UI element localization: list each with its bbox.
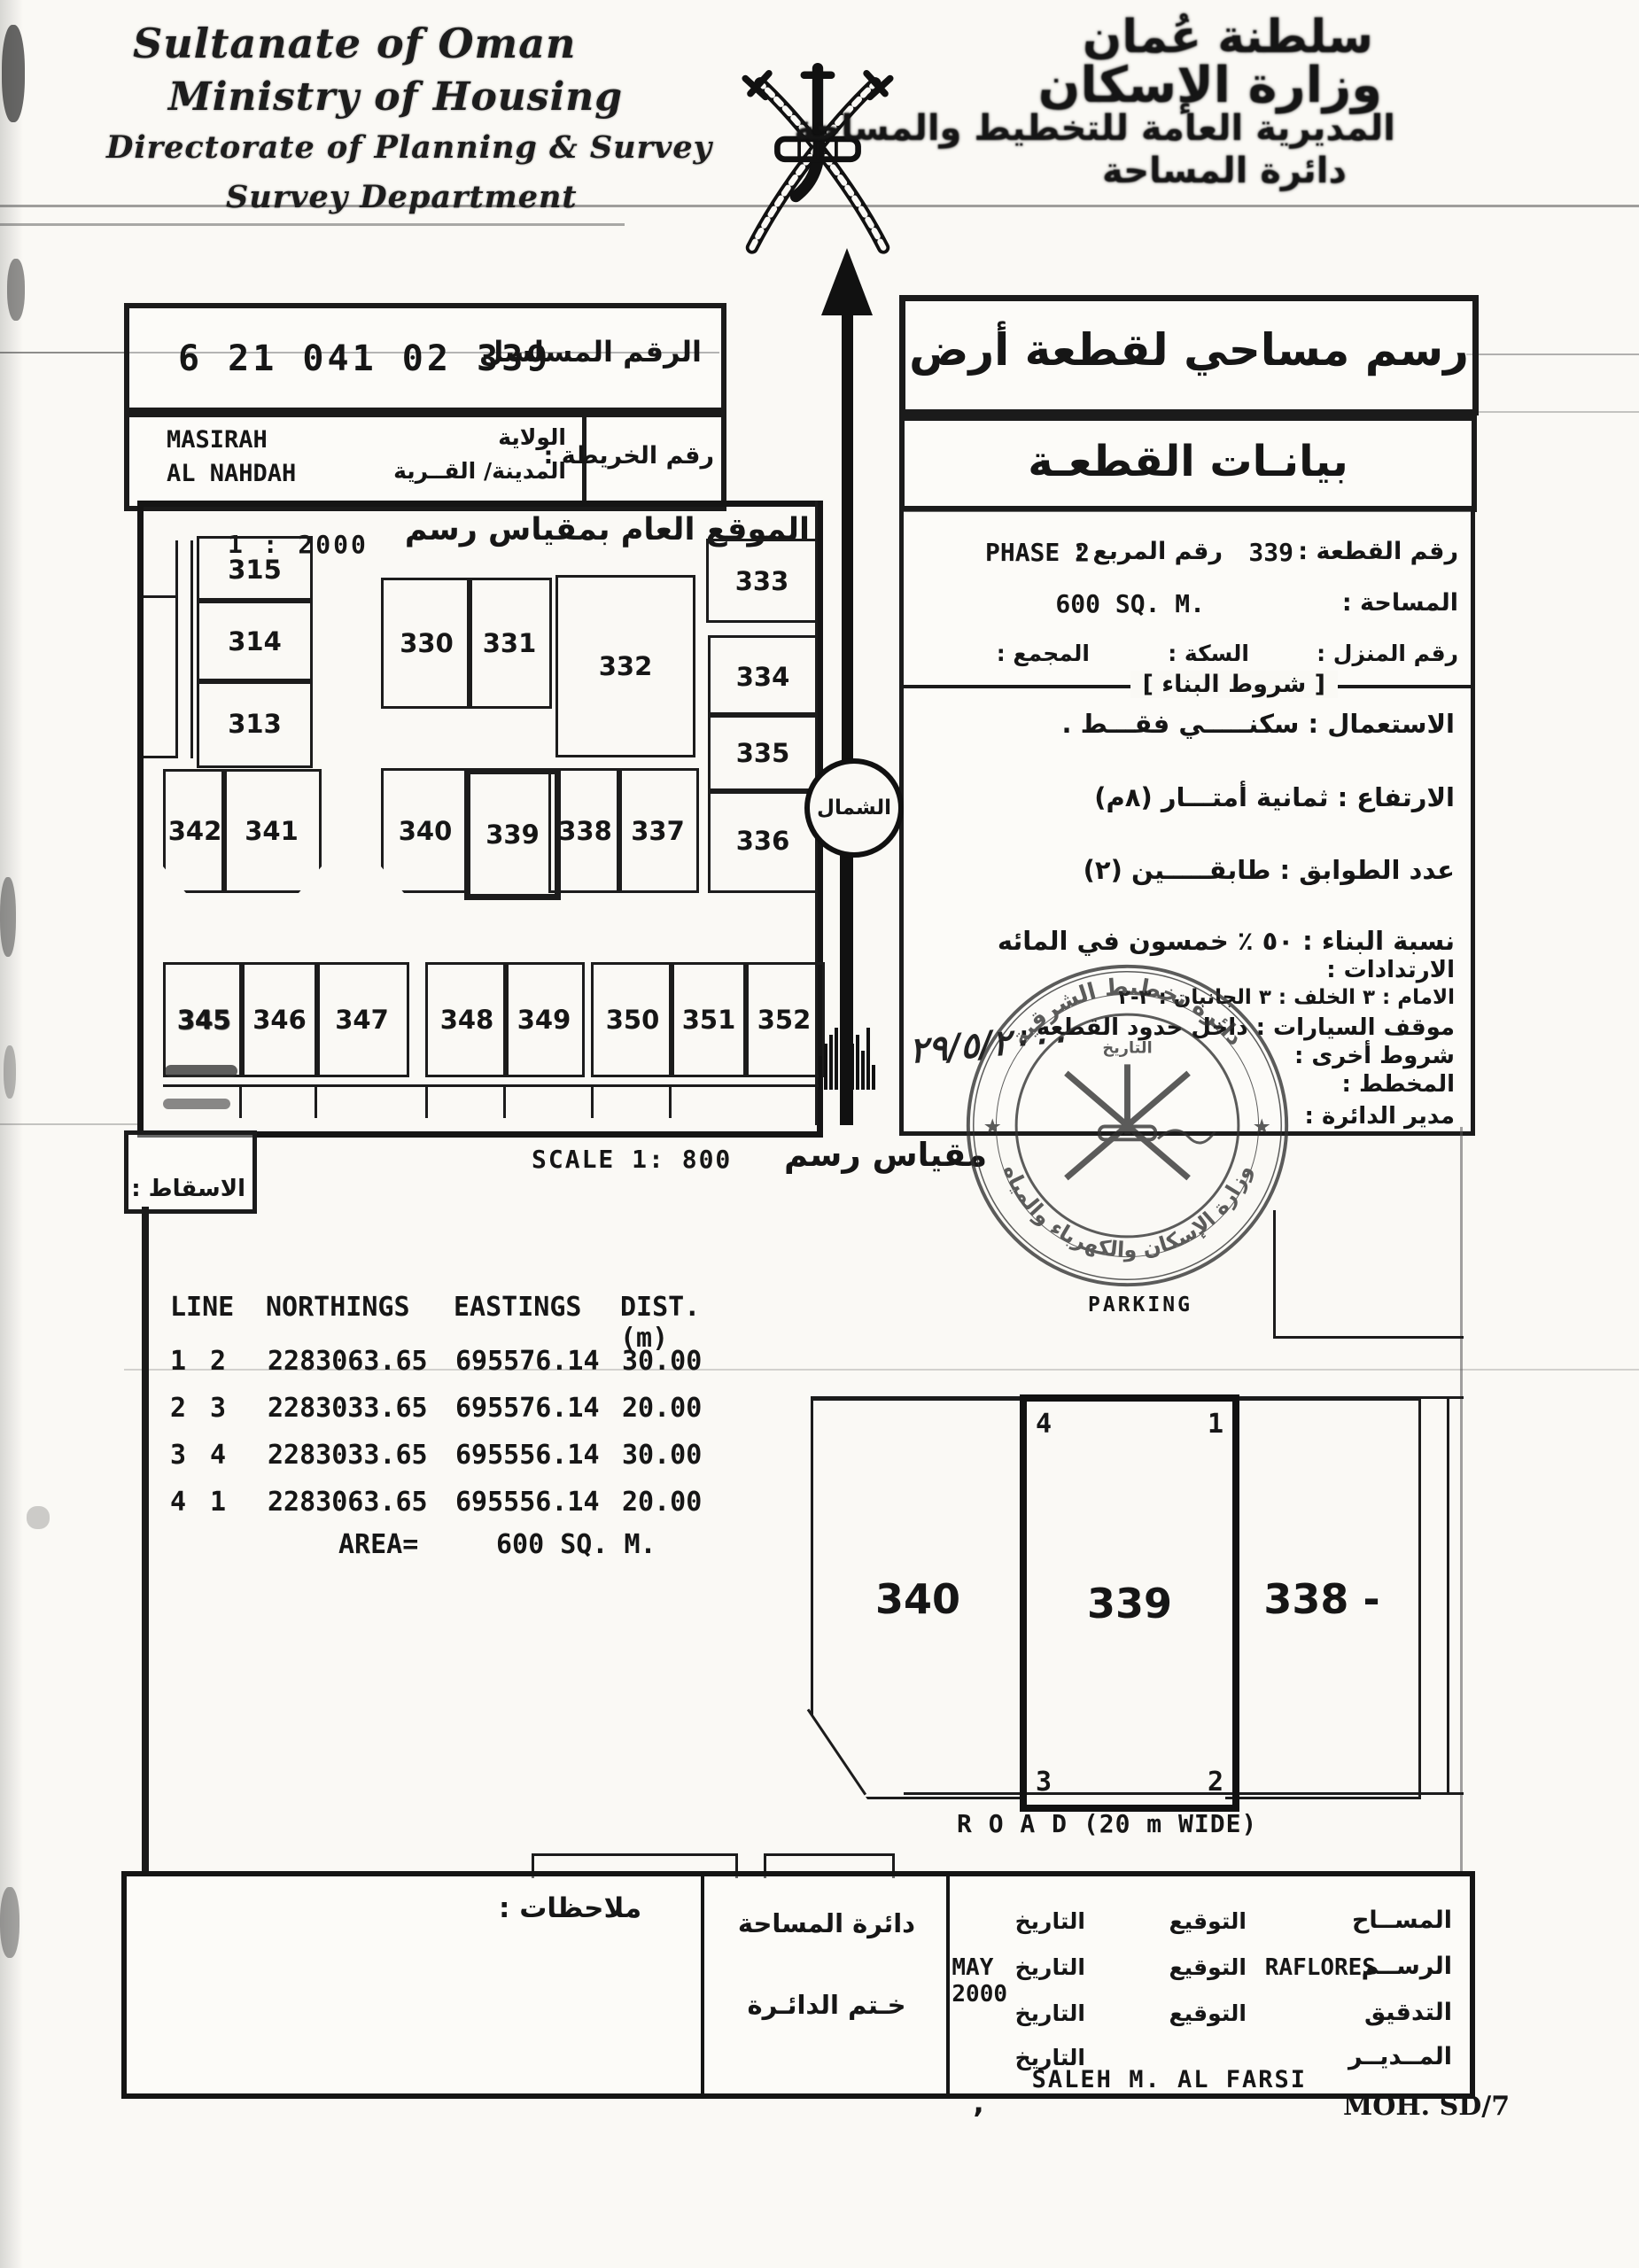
map-plot-347: 347 — [315, 962, 409, 1077]
header-line-survey-dept: Survey Department — [226, 179, 578, 215]
building-condition-line: الارتدادات : — [1326, 957, 1455, 983]
date-label: التاريخ — [1015, 1908, 1085, 1934]
coords-cell: 20.00 — [622, 1487, 746, 1518]
stamp-outer-text: وزارة الإسكان والكهرباء والمياه — [998, 1161, 1257, 1262]
scan-smudge — [27, 1506, 50, 1529]
map-plot-label: 331 — [483, 628, 537, 658]
building-condition-line: المخطط : — [1342, 1071, 1455, 1098]
map-road-tick — [144, 595, 175, 598]
wilayat-value: MASIRAH — [167, 426, 268, 454]
coords-cell: 3 — [170, 1440, 210, 1471]
road-far-edge — [764, 1853, 895, 1856]
date-label: التاريخ — [1015, 1954, 1085, 1980]
header-line-ministry: Ministry of Housing — [168, 74, 623, 120]
map-plot-346: 346 — [239, 962, 320, 1077]
complex-label: المجمع : — [997, 641, 1090, 666]
corner-point-1: 1 — [1208, 1409, 1223, 1440]
coords-cell: 1 — [170, 1346, 210, 1377]
scan-edge-shadow — [0, 0, 23, 2268]
coords-cell: 2 — [210, 1346, 268, 1377]
plot-no-label: رقم القطعة : — [1298, 538, 1458, 565]
map-plot-label: 342 — [168, 816, 222, 846]
area-value: 600 SQ. M. — [1055, 589, 1205, 618]
scan-smudge — [0, 1887, 19, 1958]
road-label: R O A D (20 m WIDE) — [957, 1809, 1257, 1838]
scan-smudge — [7, 259, 25, 321]
square-value: PHASE 2 — [985, 538, 1090, 567]
signature-value: RAFLORES — [1265, 1954, 1376, 1981]
map-plot-label: 350 — [606, 1005, 660, 1035]
stamp-star-icon: ★ — [1253, 1114, 1271, 1138]
coords-cell: 2283033.65 — [268, 1440, 455, 1471]
hatch-bar — [861, 1051, 865, 1090]
map-plot-label: 335 — [736, 738, 790, 768]
scale-text-en: SCALE 1: 800 — [532, 1145, 732, 1174]
area-label: المساحة : — [1342, 589, 1458, 617]
map-plot-label: 314 — [228, 626, 282, 656]
area-total-label: AREA= — [338, 1529, 418, 1560]
coords-cell: 2283033.65 — [268, 1393, 455, 1424]
corner-point-3: 3 — [1036, 1767, 1052, 1798]
coords-cell: 695576.14 — [455, 1393, 622, 1424]
map-plot-330: 330 — [381, 578, 472, 709]
map-plot-341: 341 — [221, 769, 322, 893]
map-plot-label: 315 — [228, 555, 282, 585]
terrain-hatch-icon — [819, 1026, 881, 1090]
map-road-tick — [144, 756, 175, 758]
signature-row: التدقيقالتوقيعالتاريخ — [959, 1999, 1457, 2043]
site-plot-340: 340 — [811, 1398, 1022, 1799]
map-plot-349: 349 — [503, 962, 585, 1077]
plot-no-value: 339 — [1248, 538, 1293, 567]
document-title: رسم مساحي لقطعة أرض — [905, 324, 1472, 376]
coords-cell: 4 — [170, 1487, 210, 1518]
scan-smudge — [2, 25, 25, 122]
location-box: MASIRAH AL NAHDAH الولاية المدينة/ القــ… — [124, 412, 726, 511]
site-plan-line — [1447, 1398, 1449, 1794]
hatch-bar — [819, 1056, 822, 1090]
date-label: التاريخ — [1015, 2000, 1085, 2026]
header-line-sultanate-ar: سلطنة عُمان — [1083, 11, 1373, 64]
projection-box: الاسقاط : — [124, 1130, 257, 1214]
map-plot-332: 332 — [555, 575, 695, 757]
scan-streak — [0, 223, 625, 226]
coords-cell: 695556.14 — [455, 1487, 622, 1518]
area-total-value: 600 SQ. M. — [496, 1529, 656, 1560]
form-code: MOH. SD/7 — [1343, 2091, 1510, 2122]
signature-label: التوقيع — [1169, 1954, 1247, 1980]
footer-signature-table: ملاحظات : دائرة المساحة خـتم الدائـرة ال… — [121, 1871, 1475, 2099]
map-plot-335: 335 — [708, 712, 818, 794]
hatch-bar — [845, 1028, 849, 1090]
serial-number-label: الرقم المسلسل — [479, 335, 702, 369]
coords-table-rows: 122283063.65695576.1430.00232283033.6569… — [170, 1338, 746, 1526]
plot-data-header-box: بيانـات القطعـة — [899, 415, 1477, 512]
signature-role-label: المســاح — [1352, 1907, 1452, 1934]
oman-emblem-icon — [734, 55, 902, 272]
coords-cell: 30.00 — [622, 1440, 746, 1471]
map-plot-label: 340 — [399, 816, 453, 846]
coords-table-row: 122283063.65695576.1430.00 — [170, 1338, 746, 1385]
street-label: السكة : — [1168, 641, 1249, 666]
map-plot-315: 315 — [197, 536, 313, 603]
house-no-label: رقم المنزل : — [1317, 641, 1458, 666]
north-label: الشمال — [817, 796, 891, 819]
coords-cell: 20.00 — [622, 1393, 746, 1424]
map-road-line — [175, 540, 178, 758]
scan-streak — [0, 1123, 140, 1125]
building-condition-line: نسبة البناء : ٥٠ ٪ خمسون في المائه — [998, 926, 1455, 956]
map-plot-331: 331 — [467, 578, 552, 709]
official-stamp: دائرة تخطيط الشرقية وزارة الإسكان والكهر… — [957, 955, 1298, 1296]
director-name: SALEH M. AL FARSI — [1032, 2066, 1307, 2093]
document-title-box: رسم مساحي لقطعة أرض — [899, 295, 1479, 416]
building-conditions-header: [ شروط البناء ] — [1130, 671, 1338, 698]
map-plot-label: 347 — [335, 1005, 389, 1035]
map-plot-334: 334 — [708, 635, 818, 718]
hatch-bar — [872, 1065, 875, 1090]
dept-stamp-label: خـتم الدائـرة — [711, 1990, 942, 2020]
parking-block-outline — [1273, 1210, 1464, 1339]
hatch-bar — [866, 1028, 870, 1090]
map-plot-342: 342 — [163, 769, 227, 893]
plot-data-header: بيانـات القطعـة — [905, 437, 1472, 486]
plot-data-fields: رقم القطعة : 339 رقم المربع : PHASE 2 ال… — [904, 511, 1471, 688]
header-line-directorate: Directorate of Planning & Survey — [106, 129, 712, 166]
map-plot-352: 352 — [743, 962, 825, 1077]
signature-row: الرســمالتوقيعRAFLORESالتاريخMAY 2000 — [959, 1953, 1457, 1997]
divider — [946, 1876, 950, 2093]
site-plot-339-highlighted: 339 4 1 3 2 — [1020, 1394, 1239, 1812]
map-plot-label: 337 — [631, 816, 685, 846]
header-line-ministry-ar: وزارة الإسكان — [1038, 57, 1382, 114]
building-condition-line: الارتفاع : ثمانية أمتـــار (٨م) — [1094, 782, 1455, 812]
header-line-directorate-ar: المديرية العامة للتخطيط والمساحة — [794, 108, 1395, 149]
map-plot-337: 337 — [617, 768, 699, 893]
scan-smudge — [163, 1099, 230, 1109]
coords-cell: 3 — [210, 1393, 268, 1424]
north-label-circle: الشمال — [804, 758, 904, 858]
map-plot-314: 314 — [197, 598, 313, 684]
signature-label: التوقيع — [1169, 1908, 1247, 1934]
site-plot-340-label: 340 — [875, 1575, 960, 1623]
scan-mark: ’ — [973, 2101, 984, 2137]
building-condition-line: مدير الدائرة : — [1305, 1103, 1455, 1130]
hatch-bar — [835, 1028, 838, 1090]
signature-label: التوقيع — [1169, 2000, 1247, 2026]
hatch-bar — [824, 1044, 827, 1090]
site-plot-338: 338 - — [1225, 1398, 1421, 1799]
map-block-tick — [503, 1084, 506, 1118]
map-plot-348: 348 — [425, 962, 509, 1077]
map-plot-label: 351 — [682, 1005, 736, 1035]
map-number-label: رقم الخريطة : — [544, 442, 714, 470]
header-line-sultanate: Sultanate of Oman — [133, 19, 576, 67]
map-plot-label: 333 — [735, 566, 789, 596]
map-plot-label: 336 — [736, 826, 790, 856]
map-plot-label: 338 — [558, 816, 612, 846]
building-condition-line: شروط أخرى : — [1294, 1043, 1455, 1069]
scan-smudge — [4, 1045, 16, 1099]
map-plot-333: 333 — [706, 539, 818, 623]
serial-number-box: 6 21 041 02 339 الرقم المسلسل — [124, 303, 726, 413]
coords-cell: 695576.14 — [455, 1346, 622, 1377]
map-plot-350: 350 — [591, 962, 674, 1077]
coords-cell: 4 — [210, 1440, 268, 1471]
signature-role-label: المــديــر — [1348, 2043, 1452, 2070]
map-block-tick — [669, 1084, 672, 1118]
coords-table-row: 232283033.65695576.1420.00 — [170, 1385, 746, 1432]
parking-label: PARKING — [1088, 1293, 1192, 1317]
map-plot-label: 339 — [485, 819, 540, 850]
projection-label: الاسقاط : — [131, 1176, 245, 1202]
map-road-line — [190, 540, 193, 758]
map-block-tick — [315, 1084, 317, 1118]
site-plot-339-label: 339 — [1087, 1580, 1172, 1627]
map-plot-339: 339 — [464, 768, 561, 900]
map-plot-338: 338 — [548, 768, 622, 893]
town-value: AL NAHDAH — [167, 460, 296, 487]
divider — [701, 1876, 704, 2093]
map-plot-label: 341 — [245, 816, 299, 846]
map-plot-313: 313 — [197, 679, 313, 768]
signature-role-label: التدقيق — [1364, 1999, 1452, 2026]
scanned-survey-document: Sultanate of Oman Ministry of Housing Di… — [0, 0, 1639, 2268]
map-block-tick — [239, 1084, 242, 1118]
coords-cell: 1 — [210, 1487, 268, 1518]
notes-label: ملاحظات : — [499, 1892, 641, 1924]
hatch-bar — [840, 1037, 843, 1090]
coords-cell: 2 — [170, 1393, 210, 1424]
stamp-star-icon: ★ — [983, 1114, 1002, 1138]
map-plot-label: 352 — [757, 1005, 812, 1035]
map-plot-351: 351 — [669, 962, 749, 1077]
coords-table-row: 342283033.65695556.1430.00 — [170, 1432, 746, 1479]
hatch-bar — [829, 1035, 833, 1090]
header-line-survey-dept-ar: دائرة المساحة — [1102, 151, 1347, 191]
map-plot-label: 334 — [736, 662, 790, 692]
building-condition-line: الاستعمال : سكنـــــي فقـــط . — [1061, 709, 1455, 739]
map-plot-label: 345 — [177, 1005, 231, 1035]
map-plot-label: 346 — [252, 1005, 307, 1035]
road-far-edge — [532, 1853, 738, 1856]
site-plot-338-label: 338 - — [1263, 1575, 1379, 1623]
scan-streak — [1466, 353, 1639, 355]
corner-point-2: 2 — [1208, 1767, 1223, 1798]
coords-cell: 695556.14 — [455, 1440, 622, 1471]
north-arrow-icon — [821, 248, 873, 315]
signature-row: المســاحالتوقيعالتاريخ — [959, 1907, 1457, 1951]
map-plot-label: 313 — [228, 709, 282, 739]
svg-text:وزارة الإسكان والكهرباء والميا: وزارة الإسكان والكهرباء والمياه — [998, 1161, 1257, 1262]
north-arrow-shaft — [842, 312, 853, 760]
coords-cell: 30.00 — [622, 1346, 746, 1377]
hatch-bar — [856, 1035, 859, 1090]
signature-row: المــديــرالتاريخSALEH M. AL FARSI — [959, 2043, 1457, 2087]
map-plot-label: 348 — [440, 1005, 494, 1035]
corner-point-4: 4 — [1036, 1409, 1052, 1440]
map-block-line — [163, 1084, 819, 1087]
map-plot-340: 340 — [381, 768, 470, 893]
building-condition-line: عدد الطوابق : طابقـــــين (٢) — [1084, 855, 1455, 885]
scan-smudge — [0, 877, 16, 957]
map-plot-345: 345 — [163, 962, 245, 1077]
overview-map: الموقع العام بمقياس رسم 1 : 2000 3153143… — [137, 501, 823, 1138]
map-plot-label: 330 — [400, 628, 454, 658]
section-border — [142, 1207, 149, 1871]
stamp-center-text: التاريخ — [1102, 1040, 1152, 1058]
map-plot-label: 332 — [599, 651, 653, 681]
survey-dept-label: دائرة المساحة — [711, 1908, 942, 1938]
map-plot-label: 349 — [517, 1005, 571, 1035]
coords-table-row: 412283063.65695556.1420.00 — [170, 1479, 746, 1526]
coords-cell: 2283063.65 — [268, 1487, 455, 1518]
square-label: رقم المربع : — [1075, 538, 1223, 565]
coords-cell: 2283063.65 — [268, 1346, 455, 1377]
map-block-tick — [425, 1084, 428, 1118]
town-label: المدينة/ القــرية — [393, 458, 566, 484]
map-plot-336: 336 — [708, 788, 818, 893]
hatch-bar — [851, 1044, 854, 1090]
map-block-tick — [591, 1084, 594, 1118]
